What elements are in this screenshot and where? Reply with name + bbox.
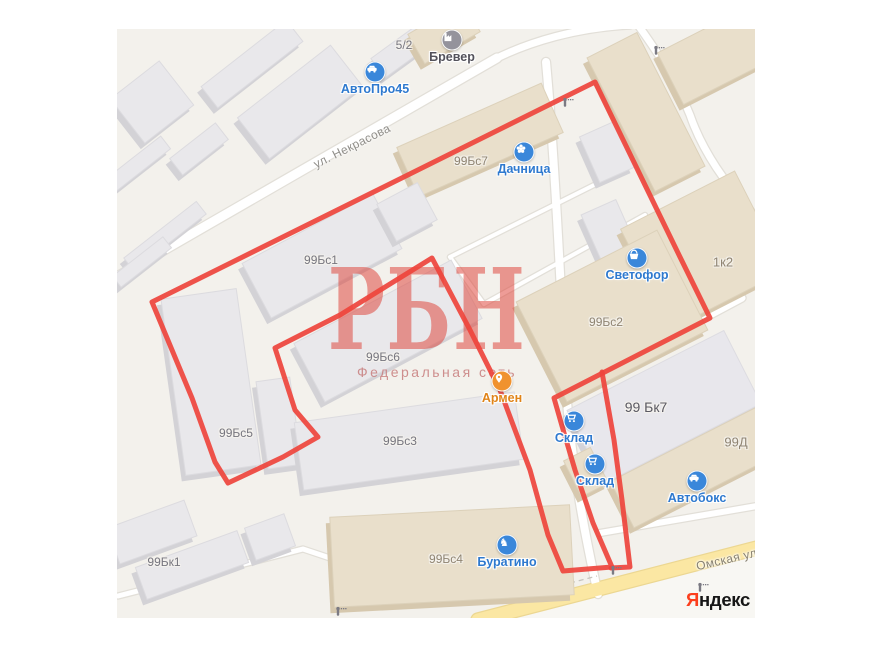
yandex-logo[interactable]: Яндекс — [686, 589, 750, 611]
bldg-99bs4 — [330, 505, 574, 607]
map-canvas[interactable]: РБН Федеральная сеть 5/299Бс799Бс199Бс69… — [117, 29, 755, 618]
map-svg: РБН Федеральная сеть — [117, 29, 755, 618]
yandex-logo-rest: ндекс — [699, 589, 750, 610]
yandex-logo-prefix: Я — [686, 589, 699, 610]
page: РБН Федеральная сеть 5/299Бс799Бс199Бс69… — [0, 0, 870, 652]
